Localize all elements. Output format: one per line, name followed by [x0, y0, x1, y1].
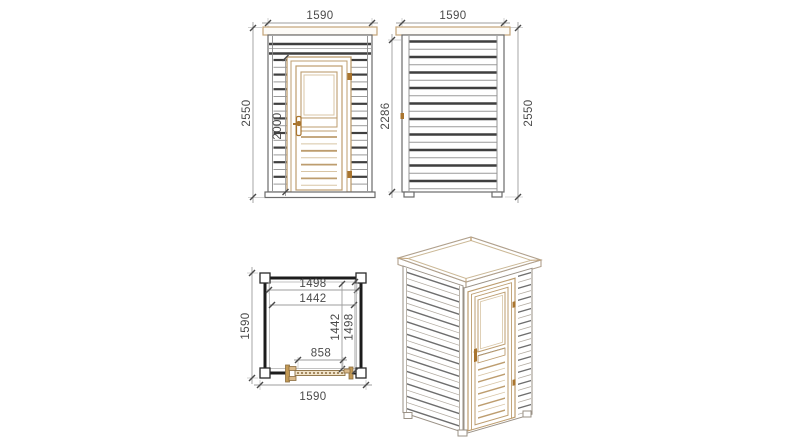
- dim-plan-depth-label: 1590: [240, 312, 252, 339]
- door-mid-rail: [301, 118, 337, 127]
- plan-door-jamb-right-arm: [344, 369, 350, 373]
- foundation-foot: [523, 411, 531, 417]
- door-handle-knob: [296, 121, 301, 126]
- iso-left-wall: [403, 266, 463, 432]
- door-hinge-bottom: [513, 379, 516, 386]
- corner-post: [260, 368, 270, 378]
- dim-plan-inner-width2-label: 1442: [299, 293, 326, 305]
- floor-plan-view: 1590 1590: [240, 267, 372, 403]
- plan-door-jamb-left-arm: [289, 377, 296, 381]
- iso-right-wall: [464, 268, 532, 434]
- roof-fascia: [396, 27, 510, 35]
- base-board: [265, 192, 375, 198]
- iso-door: [468, 278, 516, 431]
- dim-plan-inner-depth2-label: 1498: [344, 313, 356, 340]
- corner-post: [260, 273, 270, 283]
- roof-fascia: [263, 27, 377, 35]
- corner-post: [356, 368, 366, 378]
- edge-hinge-mark: [401, 113, 405, 119]
- foundation-foot: [492, 192, 502, 197]
- dim-plan-door-opening-label: 858: [311, 348, 331, 360]
- door-hinge-top: [348, 73, 353, 80]
- foundation-foot: [404, 192, 414, 197]
- dim-front-width-label: 1590: [306, 10, 333, 22]
- dim-front-height-label: 2550: [241, 99, 253, 126]
- side-elevation-view: 1590 2286 2550: [380, 10, 535, 203]
- dim-plan-inner-width-label: 1498: [299, 278, 326, 290]
- front-elevation-view: 1590 2550: [241, 10, 378, 203]
- side-wall: [402, 35, 504, 192]
- door-hinge-bottom: [348, 171, 353, 178]
- isometric-view: [398, 237, 541, 436]
- dim-plan-width-label: 1590: [299, 391, 326, 403]
- door-window-inner: [304, 75, 334, 115]
- corner-post: [356, 273, 366, 283]
- foundation-foot: [404, 413, 412, 419]
- door-hinge-top: [513, 301, 516, 308]
- dim-plan-inner-depth-label: 1442: [330, 313, 342, 340]
- technical-drawing: 1590 2550: [0, 0, 794, 446]
- drawing-canvas: 1590 2550: [0, 0, 794, 446]
- front-door: [287, 57, 352, 192]
- roof-corner-joint: [398, 258, 408, 259]
- dim-door-height-label: 2000: [272, 112, 284, 139]
- plan-door-jamb-left-arm: [289, 367, 296, 371]
- dim-side-wall-height-label: 2286: [380, 102, 392, 129]
- door-window-inner: [481, 295, 503, 348]
- foundation-foot: [458, 430, 467, 436]
- dim-side-height-label: 2550: [523, 99, 535, 126]
- dim-side-width-label: 1590: [439, 10, 466, 22]
